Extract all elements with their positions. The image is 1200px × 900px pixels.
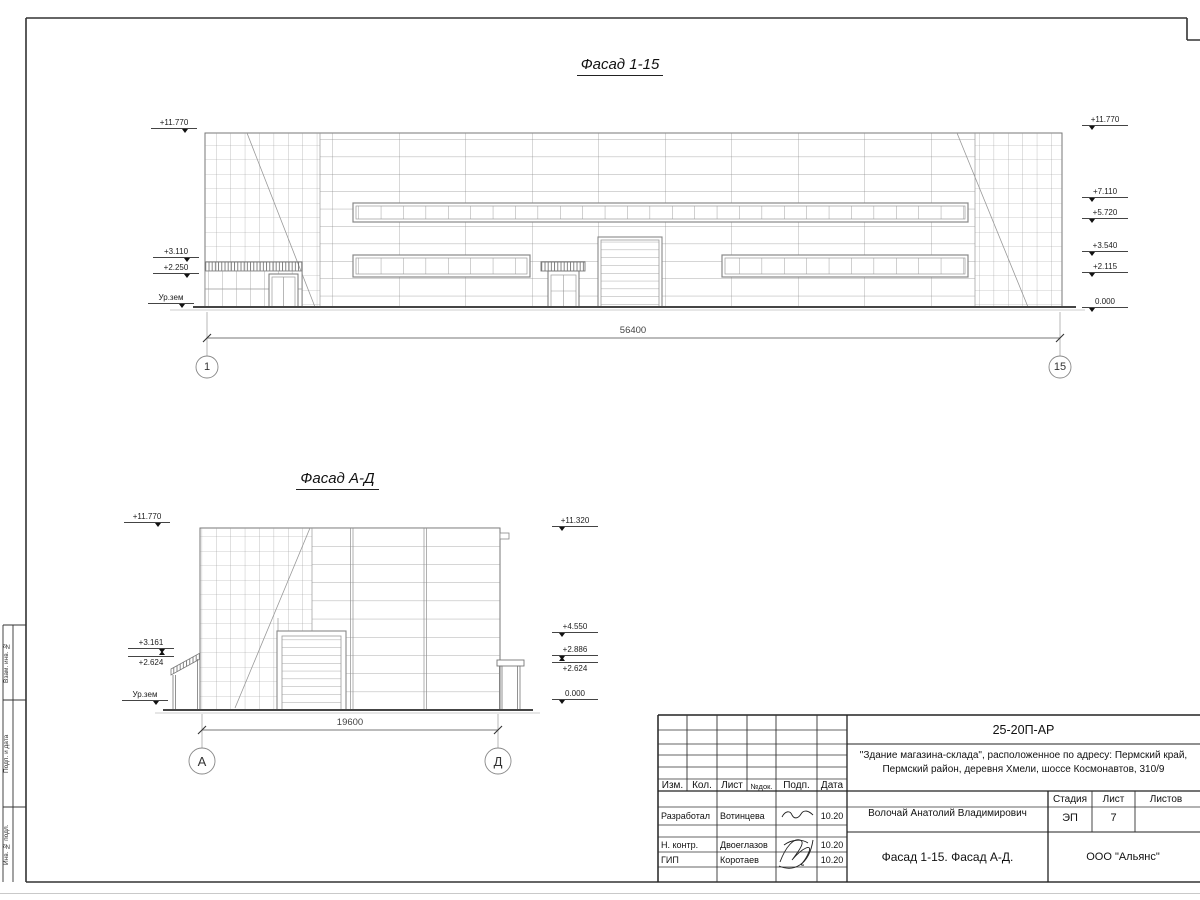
elevation-mark: Ур.зем <box>148 293 194 304</box>
header-izm: Изм. <box>658 780 687 791</box>
chief-name: Волочай Анатолий Владимирович <box>847 808 1048 819</box>
strip-label-podp: Подп. и дата <box>2 700 13 807</box>
row-role: Разработал <box>661 811 710 821</box>
header-kol: Кол. <box>687 780 717 791</box>
facade-1-15-drawing <box>170 133 1085 378</box>
axis-bubble-1: 1 <box>192 361 222 373</box>
facade1-dimension: 56400 <box>583 325 683 336</box>
elevation-mark: +3.110 <box>153 247 199 258</box>
elevation-mark: +4.550 <box>552 622 598 633</box>
elevation-mark: +2.115 <box>1082 262 1128 273</box>
elevation-mark: +2.624 <box>552 662 598 673</box>
row-date: 10.20 <box>818 811 846 821</box>
paper-edge <box>0 893 1200 894</box>
header-ndok: №док. <box>747 782 776 791</box>
header-data: Дата <box>817 780 847 791</box>
elevation-mark: +11.770 <box>1082 115 1128 126</box>
elevation-mark: 0.000 <box>1082 297 1128 308</box>
drawing-sheet: Фасад 1-15 Фасад А-Д 56400 19600 1 15 А … <box>0 0 1200 900</box>
row-name: Двоеглазов <box>720 840 768 850</box>
strip-label-vzam: Взам. инв. № <box>2 625 13 700</box>
signature-dvoeglazov <box>784 840 808 845</box>
stage-value: ЭП <box>1048 812 1092 824</box>
axis-bubble-15: 15 <box>1045 361 1075 373</box>
header-list: Лист <box>717 780 747 791</box>
sheet-label: Лист <box>1092 794 1135 805</box>
facade1-title: Фасад 1-15 <box>555 56 685 76</box>
project-name-line1: "Здание магазина-склада", расположенное … <box>850 749 1197 763</box>
axis-bubble-d: Д <box>483 754 513 769</box>
elevation-mark: +5.720 <box>1082 208 1128 219</box>
elevation-mark: +3.161 <box>128 638 174 649</box>
row-role: Н. контр. <box>661 840 698 850</box>
axis-bubble-a: А <box>187 754 217 769</box>
sheet-title: Фасад 1-15. Фасад А-Д. <box>847 850 1048 864</box>
signature-votintseva <box>782 811 813 818</box>
elevation-mark: 0.000 <box>552 689 598 700</box>
signature-gip <box>780 840 810 865</box>
facade-a-d-drawing <box>155 528 540 774</box>
row-name: Коротаев <box>720 855 759 865</box>
row-role: ГИП <box>661 855 679 865</box>
elevation-mark: +11.320 <box>552 516 598 527</box>
elevation-mark: +2.250 <box>153 263 199 274</box>
elevation-mark: +11.770 <box>151 118 197 129</box>
row-date: 10.20 <box>818 855 846 865</box>
elevation-mark: +11.770 <box>124 512 170 523</box>
sheets-label: Листов <box>1135 794 1197 805</box>
project-name: "Здание магазина-склада", расположенное … <box>850 749 1197 777</box>
elevation-mark: +7.110 <box>1082 187 1128 198</box>
elevation-mark: +2.886 <box>552 645 598 656</box>
sheet-value: 7 <box>1092 812 1135 824</box>
facade2-dimension: 19600 <box>300 717 400 728</box>
project-name-line2: Пермский район, деревня Хмели, шоссе Кос… <box>850 763 1197 777</box>
elevation-mark: Ур.зем <box>122 690 168 701</box>
header-podp: Подп. <box>776 780 817 791</box>
row-date: 10.20 <box>818 840 846 850</box>
strip-label-inv: Инв. № подл. <box>2 807 13 882</box>
doc-number: 25-20П-АР <box>847 723 1200 737</box>
elevation-mark: +3.540 <box>1082 241 1128 252</box>
stage-label: Стадия <box>1048 794 1092 805</box>
elevation-mark: +2.624 <box>128 656 174 667</box>
company-name: ООО "Альянс" <box>1048 851 1198 863</box>
row-name: Вотинцева <box>720 811 765 821</box>
facade2-title: Фасад А-Д <box>275 470 400 490</box>
